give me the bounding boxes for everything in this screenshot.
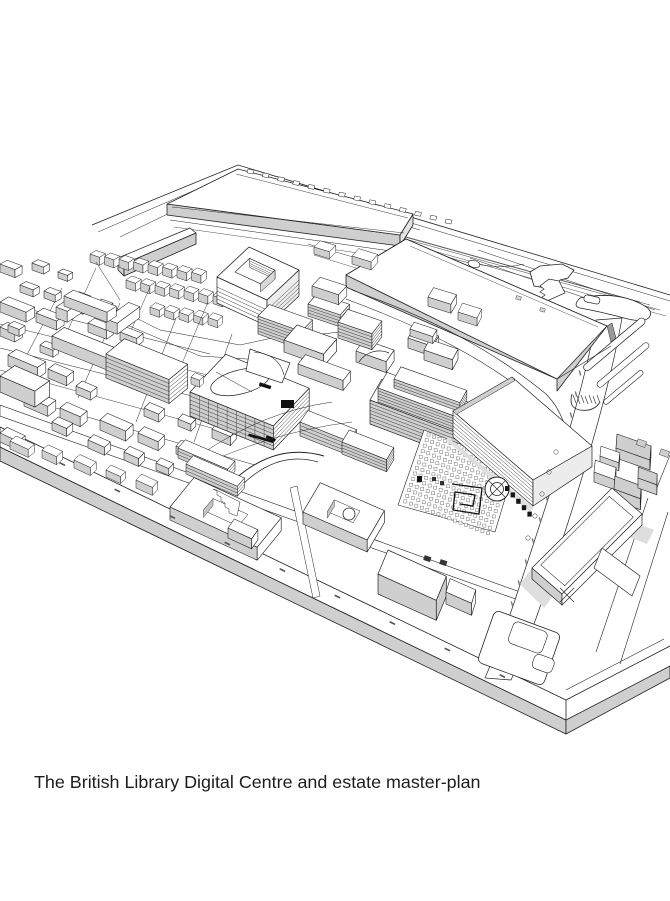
- svg-text:The British Library Digital Ce: The British Library Digital Centre and e…: [34, 772, 480, 792]
